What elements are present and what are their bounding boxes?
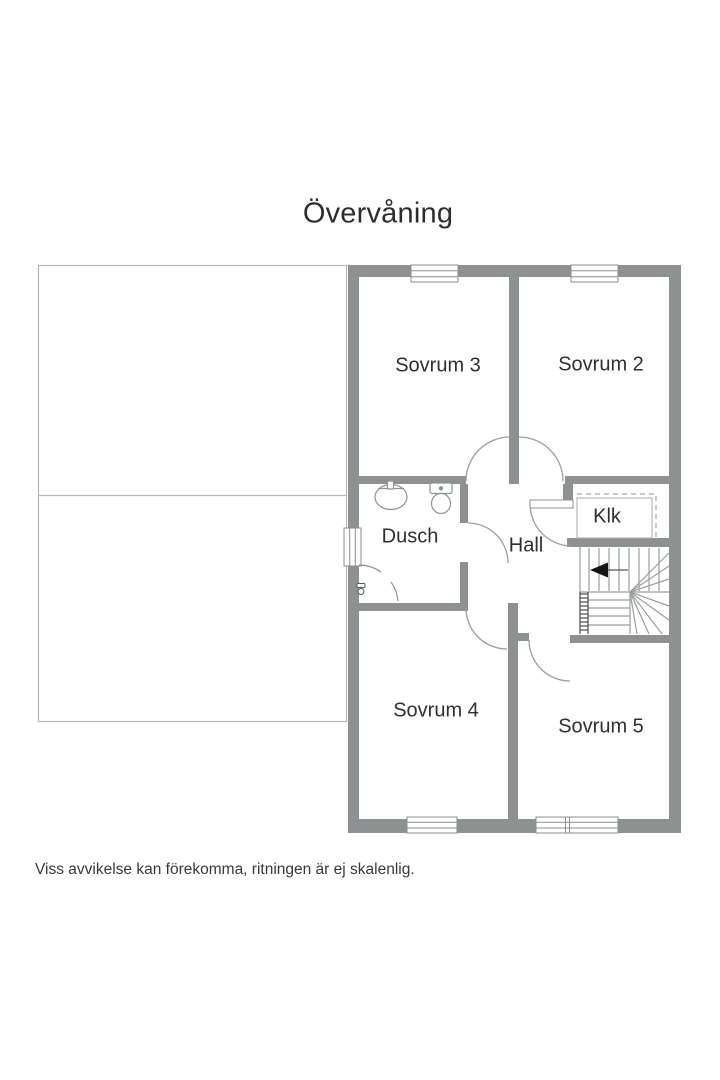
wall-outer-top xyxy=(348,265,681,277)
door-arc-sovrum4 xyxy=(466,608,507,649)
window-sovrum4 xyxy=(407,817,457,833)
room-label-klk: Klk xyxy=(593,506,621,529)
toilet-icon xyxy=(430,483,452,514)
room-label-hall: Hall xyxy=(509,535,543,558)
wall-dusch-bottom xyxy=(359,603,466,611)
wall-sovrum5-top xyxy=(570,635,669,643)
wall-hall-bottom-stub xyxy=(518,633,529,641)
wall-hall-top-right xyxy=(565,476,669,484)
door-arc-sovrum5 xyxy=(529,640,570,681)
attic-outline xyxy=(39,266,347,722)
page-title: Övervåning xyxy=(303,198,453,231)
floor-plan-drawing xyxy=(0,0,720,1080)
stairs-cut-hatch xyxy=(580,592,588,634)
room-label-sovrum-2: Sovrum 2 xyxy=(558,354,644,377)
door-arc-sovrum3 xyxy=(466,437,510,481)
wall-sovrum4-sovrum5 xyxy=(508,603,518,833)
room-label-sovrum-4: Sovrum 4 xyxy=(393,700,479,723)
windows xyxy=(344,265,618,833)
wall-stairs-top xyxy=(567,538,669,547)
attic-rect xyxy=(39,266,347,722)
sink-icon xyxy=(375,481,407,510)
closet-door-leaf xyxy=(530,500,573,508)
door-arc-dusch xyxy=(468,523,508,563)
floorplan-page: Övervåning Sovrum 3 Sovrum 2 Dusch Hall … xyxy=(0,0,720,1080)
wall-sovrum3-sovrum2 xyxy=(509,277,519,484)
wall-outer-right xyxy=(669,265,681,833)
room-label-sovrum-5: Sovrum 5 xyxy=(558,716,644,739)
window-sovrum2 xyxy=(571,265,618,282)
wall-dusch-right-upper xyxy=(460,484,468,523)
window-sovrum3 xyxy=(411,265,458,282)
window-dusch-left xyxy=(344,528,361,566)
shower-enclosure xyxy=(359,565,398,601)
door-arc-sovrum2 xyxy=(519,437,563,481)
window-sovrum5 xyxy=(536,817,618,833)
room-label-sovrum-3: Sovrum 3 xyxy=(395,355,481,378)
wall-klk-stub xyxy=(563,484,573,501)
room-label-dusch: Dusch xyxy=(382,526,439,549)
stairs-treads-horizontal xyxy=(588,600,630,625)
staircase xyxy=(580,547,669,634)
scale-disclaimer: Viss avvikelse kan förekomma, ritningen … xyxy=(35,861,415,879)
